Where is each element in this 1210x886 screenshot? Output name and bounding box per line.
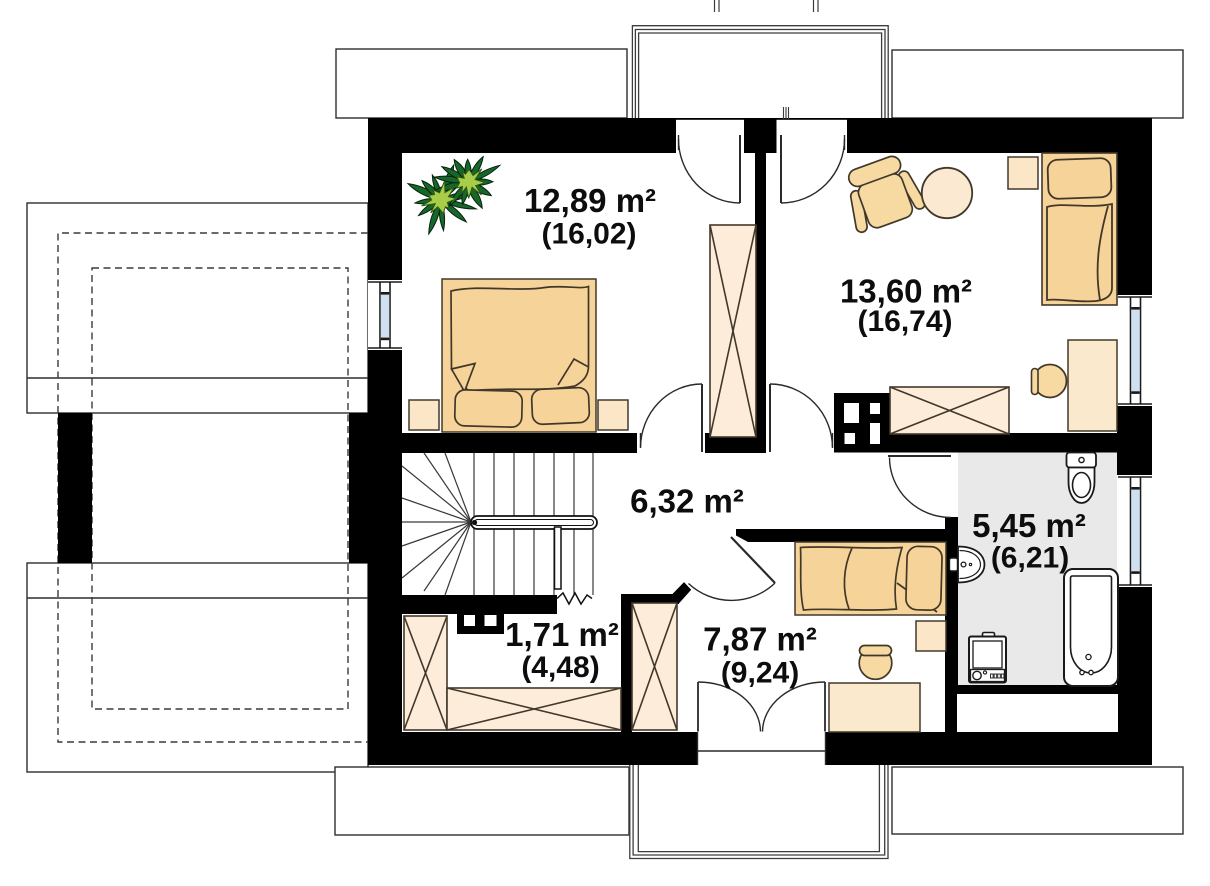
svg-text:12,89 m²: 12,89 m² (524, 182, 656, 219)
svg-text:(6,21): (6,21) (991, 542, 1069, 575)
svg-text:(16,02): (16,02) (541, 218, 636, 251)
svg-text:1,71 m²: 1,71 m² (505, 616, 619, 653)
svg-text:7,87 m²: 7,87 m² (703, 621, 817, 658)
svg-text:13,60 m²: 13,60 m² (840, 273, 972, 310)
svg-text:(4,48): (4,48) (521, 651, 599, 684)
svg-text:(9,24): (9,24) (721, 657, 799, 690)
svg-text:5,45 m²: 5,45 m² (972, 507, 1086, 544)
svg-text:(16,74): (16,74) (857, 305, 952, 338)
svg-text:6,32 m²: 6,32 m² (630, 483, 744, 520)
